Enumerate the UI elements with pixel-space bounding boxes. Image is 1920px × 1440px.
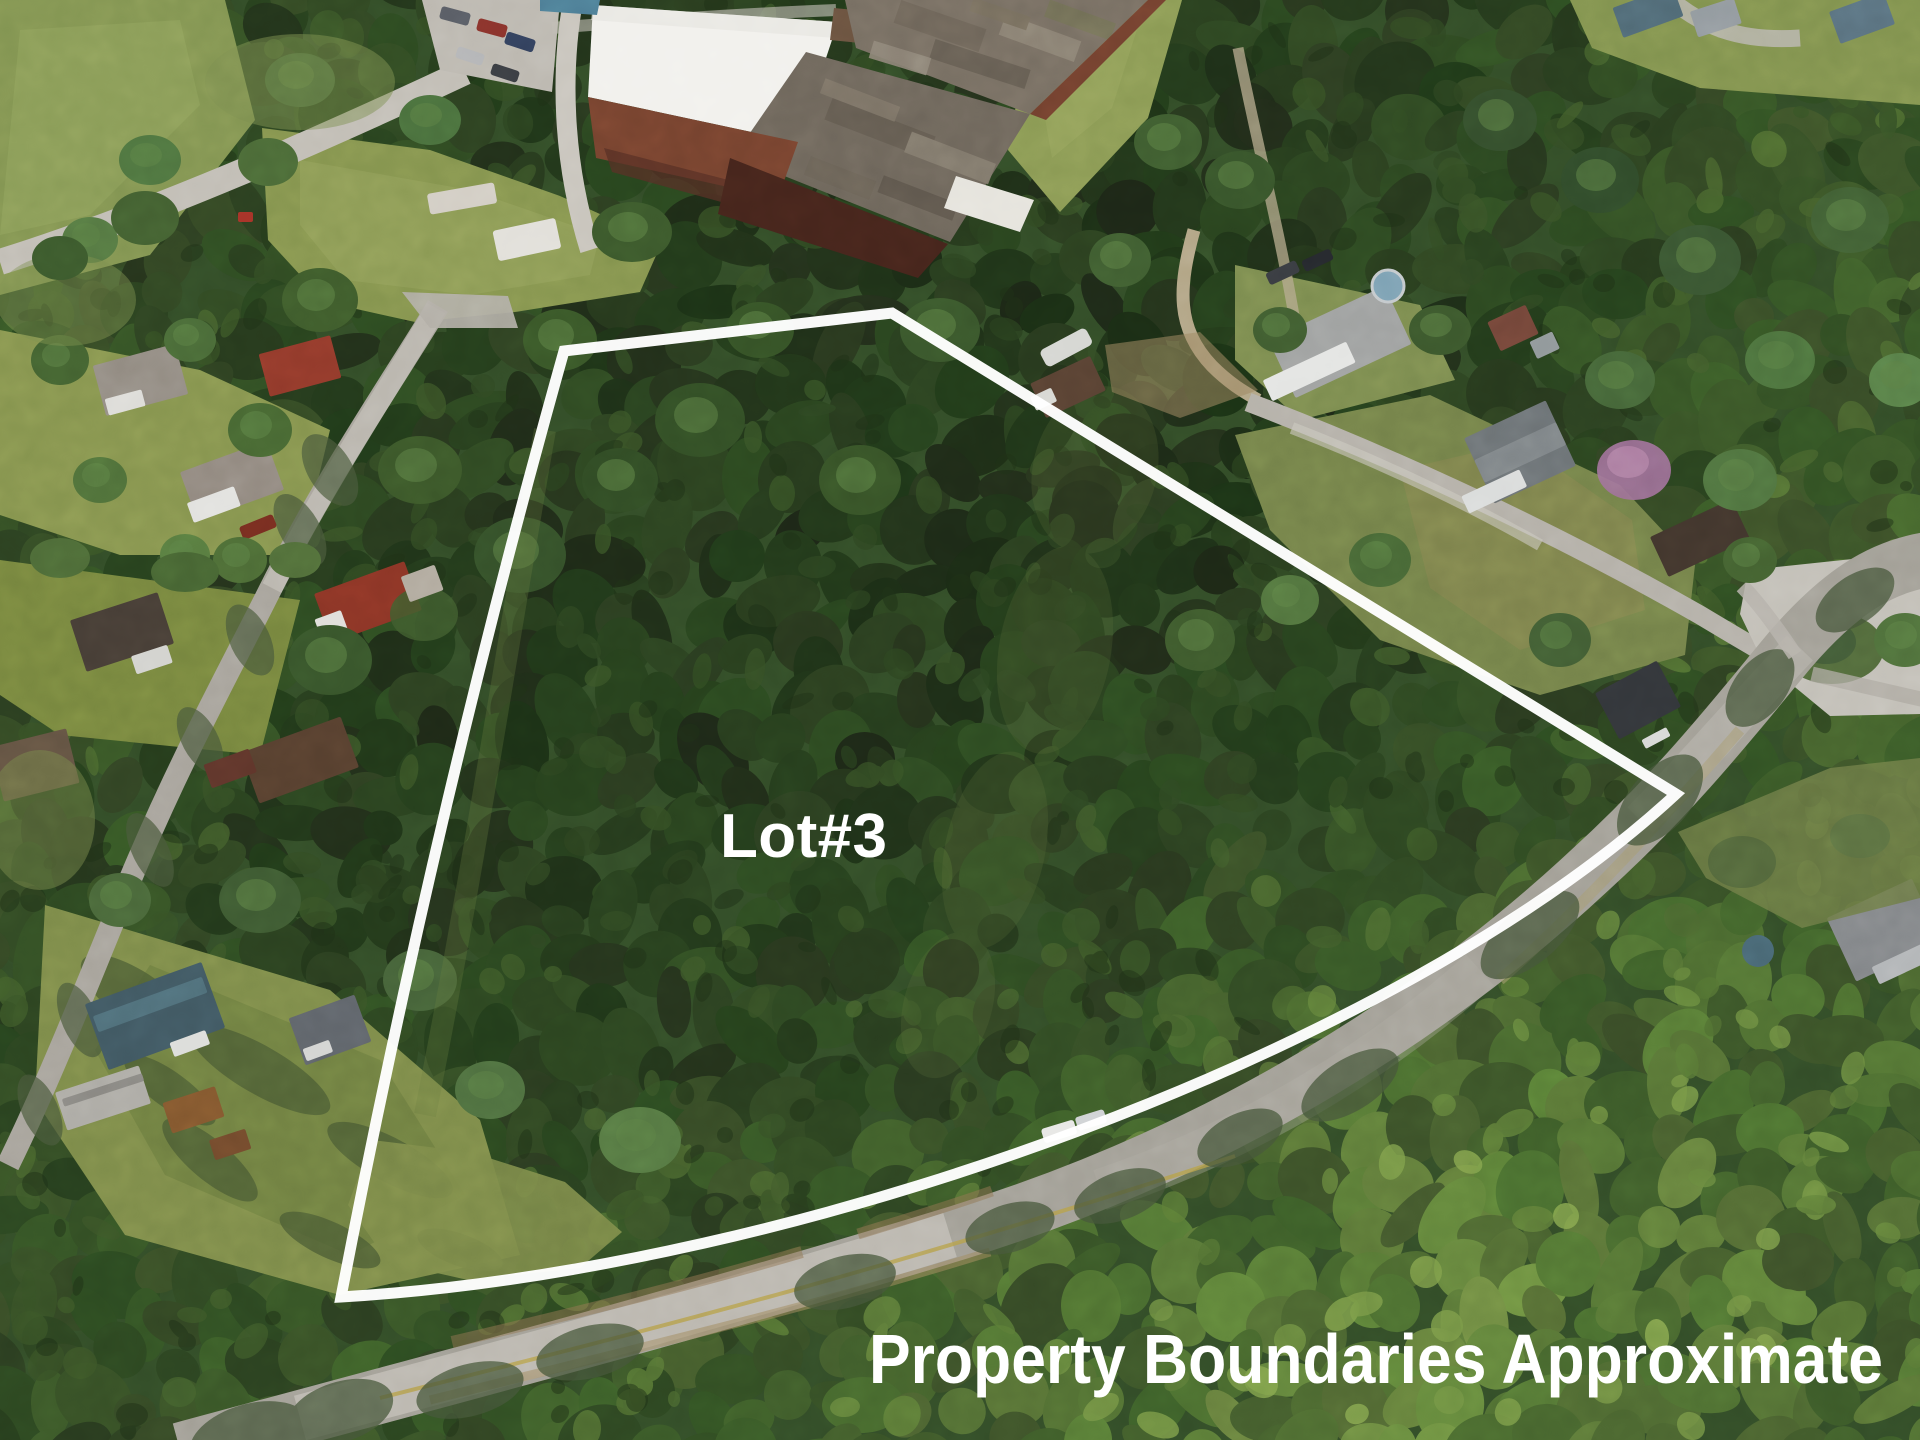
- svg-text:Lot#3: Lot#3: [720, 802, 887, 871]
- svg-text:Property Boundaries Approximat: Property Boundaries Approximate: [869, 1320, 1883, 1398]
